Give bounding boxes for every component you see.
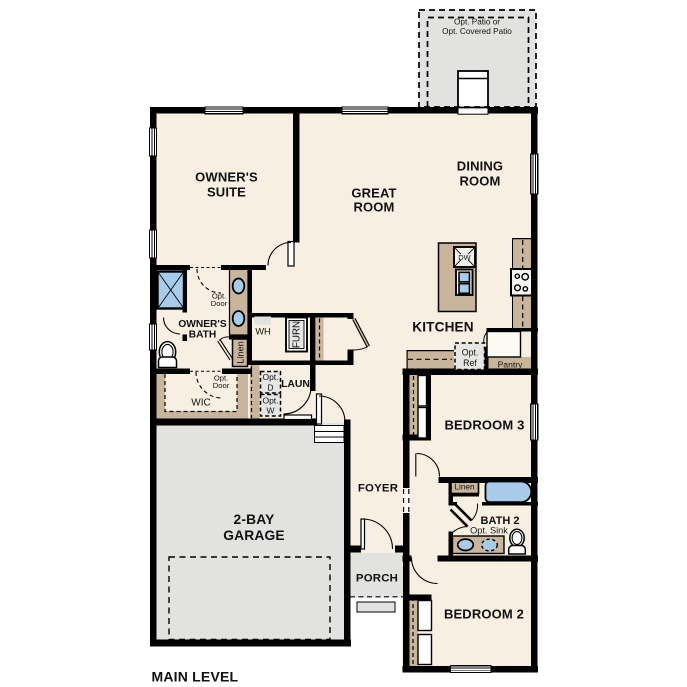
- svg-text:Opt. Patio or: Opt. Patio or: [454, 18, 500, 27]
- svg-text:OWNER'S: OWNER'S: [178, 319, 226, 330]
- svg-text:WH: WH: [255, 327, 270, 337]
- svg-text:FOYER: FOYER: [358, 483, 398, 495]
- svg-text:D: D: [267, 383, 273, 393]
- svg-text:WIC: WIC: [191, 398, 210, 409]
- svg-text:ROOM: ROOM: [459, 174, 500, 189]
- svg-text:Door: Door: [213, 381, 230, 390]
- svg-text:Opt.: Opt.: [262, 396, 278, 406]
- svg-text:Linen: Linen: [236, 341, 246, 363]
- svg-text:BEDROOM 2: BEDROOM 2: [444, 607, 524, 622]
- svg-text:DINING: DINING: [457, 159, 503, 174]
- svg-text:Opt.: Opt.: [262, 372, 278, 382]
- svg-text:PORCH: PORCH: [356, 573, 398, 585]
- svg-text:GARAGE: GARAGE: [223, 528, 284, 543]
- svg-text:Pantry: Pantry: [498, 360, 524, 370]
- svg-text:LAUN: LAUN: [281, 379, 310, 390]
- svg-text:Ref: Ref: [463, 358, 477, 368]
- svg-text:Linen: Linen: [454, 483, 474, 492]
- svg-text:MAIN LEVEL: MAIN LEVEL: [152, 669, 239, 685]
- svg-text:GREAT: GREAT: [351, 186, 396, 201]
- svg-text:DW: DW: [458, 253, 471, 262]
- svg-text:OWNER'S: OWNER'S: [195, 170, 258, 185]
- svg-text:ROOM: ROOM: [353, 200, 394, 215]
- svg-text:FURN: FURN: [292, 321, 303, 348]
- svg-text:SUITE: SUITE: [207, 185, 246, 200]
- svg-text:BATH: BATH: [189, 330, 217, 341]
- svg-text:Opt. Sink: Opt. Sink: [470, 526, 508, 536]
- svg-text:Opt. Covered Patio: Opt. Covered Patio: [442, 27, 512, 36]
- svg-text:BEDROOM 3: BEDROOM 3: [444, 418, 524, 433]
- svg-text:Opt.: Opt.: [462, 348, 479, 358]
- svg-text:Door: Door: [211, 299, 228, 308]
- svg-text:W: W: [266, 406, 274, 416]
- svg-text:KITCHEN: KITCHEN: [412, 320, 473, 335]
- svg-text:2-BAY: 2-BAY: [234, 512, 275, 527]
